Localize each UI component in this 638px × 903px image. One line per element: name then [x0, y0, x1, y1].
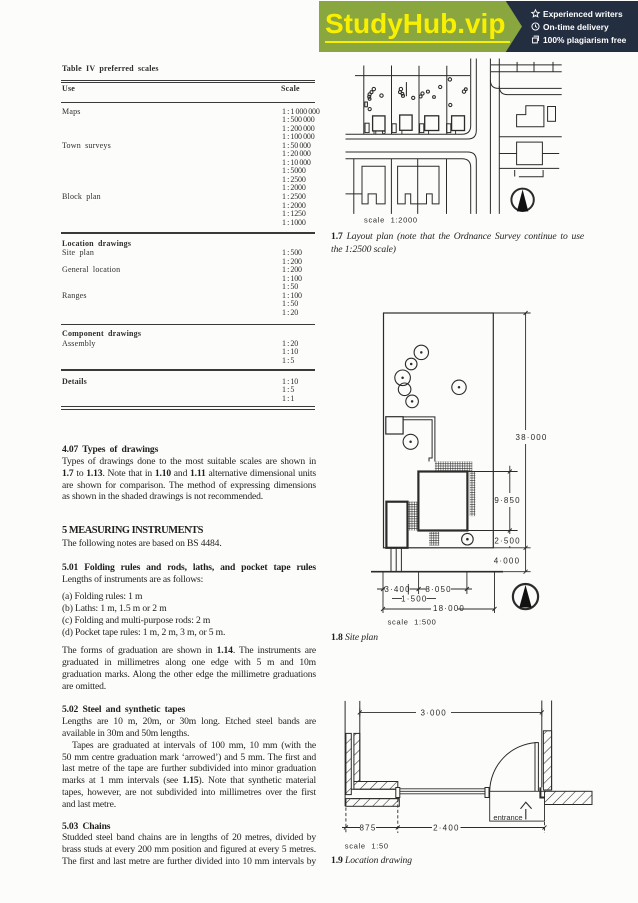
- svg-text:4·000: 4·000: [494, 557, 520, 566]
- svg-text:1·500: 1·500: [401, 595, 427, 604]
- svg-text:2·400: 2·400: [433, 824, 459, 833]
- svg-text:scale 1:2000: scale 1:2000: [364, 216, 418, 225]
- svg-text:8·050: 8·050: [425, 585, 451, 594]
- svg-text:18·000: 18·000: [433, 604, 465, 613]
- svg-text:38·000: 38·000: [515, 433, 547, 442]
- svg-text:entrance: entrance: [493, 813, 522, 822]
- svg-text:scale 1:500: scale 1:500: [388, 618, 437, 627]
- svg-text:3·400: 3·400: [384, 585, 410, 594]
- svg-text:3·000: 3·000: [420, 708, 446, 717]
- svg-text:875: 875: [360, 824, 377, 833]
- svg-text:2·500: 2·500: [494, 537, 520, 546]
- svg-text:scale 1:50: scale 1:50: [345, 842, 389, 851]
- svg-text:9·850: 9·850: [494, 496, 520, 505]
